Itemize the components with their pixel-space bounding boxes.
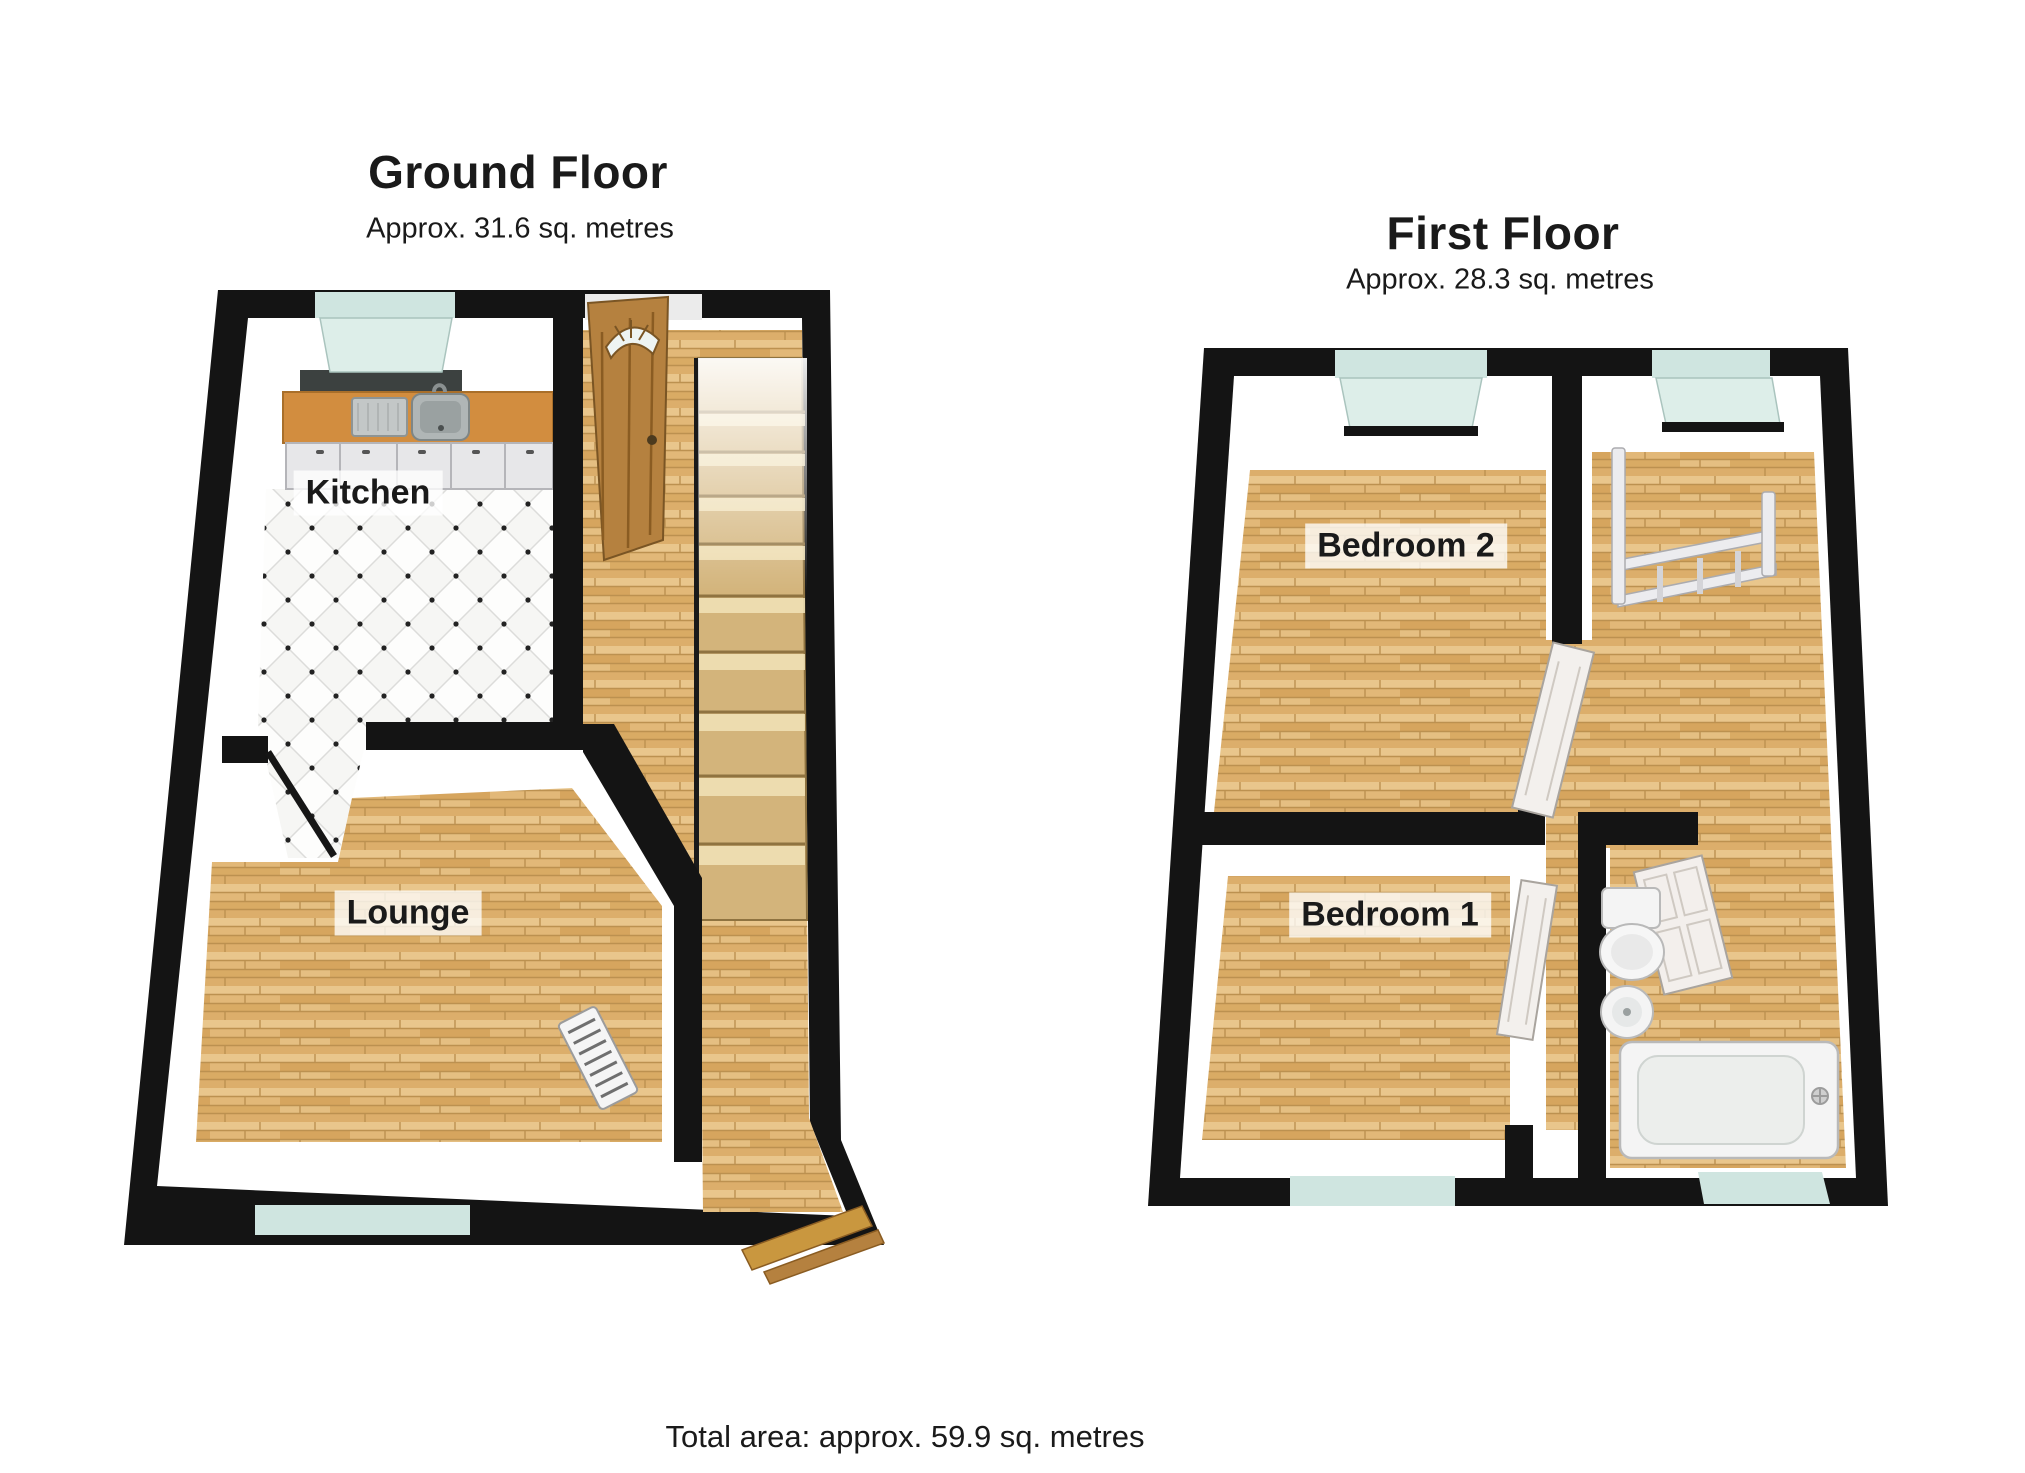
lounge-hall-wall (674, 900, 702, 1162)
total-area-label: Total area: approx. 59.9 sq. metres (665, 1419, 1144, 1455)
kitchen-hall-wall (553, 290, 583, 748)
bedroom1-wall-stub (1505, 1125, 1533, 1206)
staircase (694, 358, 807, 920)
bedroom-divider-wall (1196, 812, 1545, 845)
ground-floor-area-text: Approx. 31.6 sq. metres (366, 213, 674, 246)
kitchen-window (315, 292, 455, 318)
door-stub-wall (222, 736, 268, 763)
bedroom2-window-sill (1344, 426, 1478, 436)
room-label-kitchen: Kitchen (294, 471, 443, 516)
bathroom-window (1698, 1172, 1830, 1204)
bedroom2-landing-wall (1552, 348, 1582, 644)
room-label-bedroom1: Bedroom 1 (1289, 893, 1491, 938)
floorplans-svg (0, 0, 2025, 1473)
kitchen-backsplash (300, 370, 462, 392)
bedroom2-floor (1214, 470, 1546, 812)
landing-window-sill (1662, 422, 1784, 432)
sink-drain (438, 425, 444, 431)
bathtub (1620, 1042, 1838, 1158)
toilet (1600, 888, 1664, 980)
landing-window-glass (1656, 378, 1780, 424)
first-floor-plan (1148, 348, 1888, 1206)
room-label-lounge: Lounge (335, 891, 482, 936)
kitchen-window-glass (320, 318, 452, 372)
bedroom1-window (1290, 1176, 1455, 1206)
bedroom2-window-glass (1340, 378, 1482, 428)
wash-basin (1601, 986, 1653, 1038)
ground-floor-plan (124, 290, 884, 1284)
kitchen-lounge-wall (366, 722, 583, 750)
first-floor-title: First Floor (1387, 206, 1620, 260)
floorplan-image: Ground Floor Approx. 31.6 sq. metres Fir… (0, 0, 2025, 1473)
door-knob (647, 435, 657, 445)
bedroom2-window (1335, 350, 1487, 378)
first-floor-area-text: Approx. 28.3 sq. metres (1346, 264, 1654, 297)
landing-window (1652, 350, 1770, 378)
bathroom-top-wall (1578, 812, 1698, 845)
ground-floor-title: Ground Floor (368, 145, 668, 199)
lounge-window (255, 1205, 470, 1235)
room-label-bedroom2: Bedroom 2 (1305, 524, 1507, 569)
